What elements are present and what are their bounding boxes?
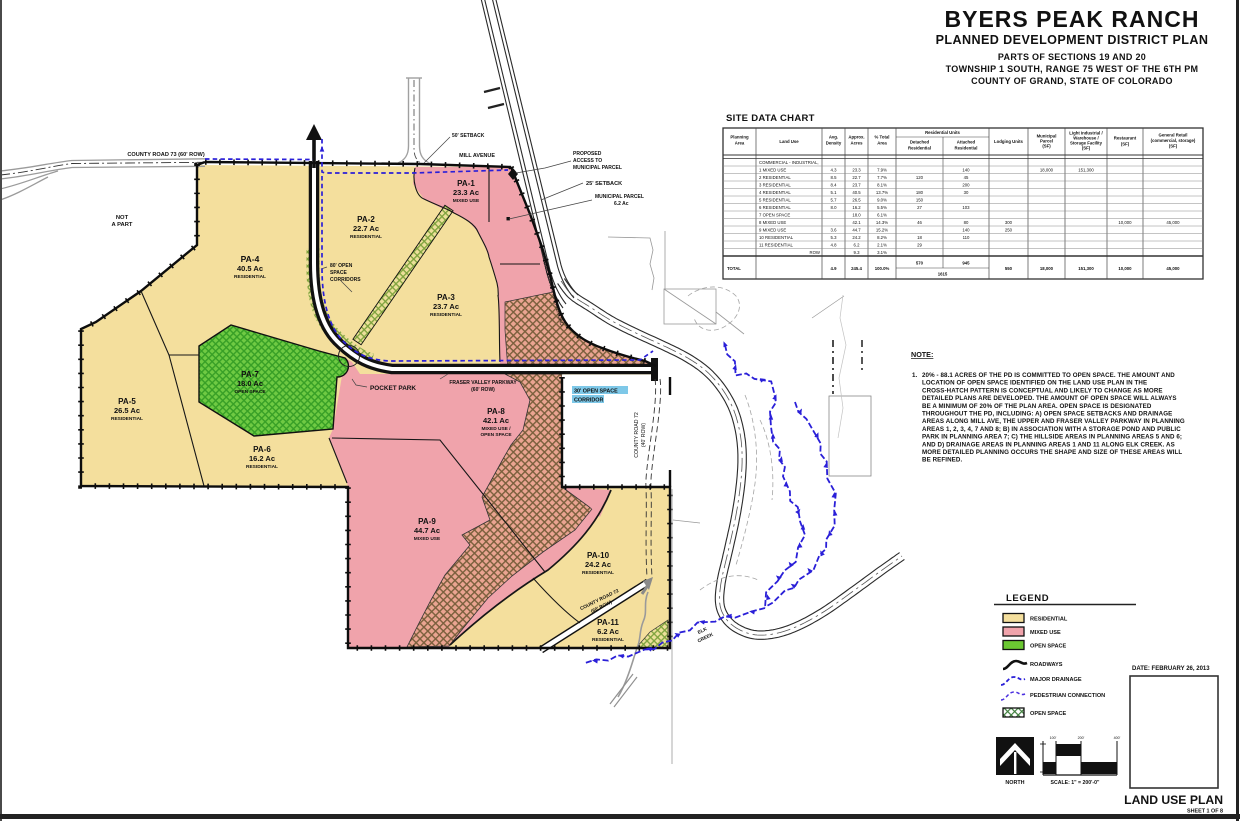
svg-text:ACCESS TO: ACCESS TO [573, 158, 602, 164]
svg-text:BE A MINIMUM OF 20% OF THE PLA: BE A MINIMUM OF 20% OF THE PLAN AREA. OP… [922, 403, 1152, 410]
svg-text:RESIDENTIAL: RESIDENTIAL [246, 464, 278, 470]
svg-text:Approx.: Approx. [848, 135, 864, 140]
svg-text:MIXED USE: MIXED USE [414, 536, 441, 542]
svg-text:MIXED USE: MIXED USE [453, 198, 480, 204]
svg-text:18: 18 [917, 235, 922, 240]
svg-text:DETAILED PLANS ARE DEVELOPED.: DETAILED PLANS ARE DEVELOPED. THE AMOUNT… [922, 395, 1177, 402]
svg-text:40.5 Ac: 40.5 Ac [237, 264, 263, 273]
svg-text:MIXED USE: MIXED USE [1030, 630, 1061, 636]
svg-text:PARK IN PLANNING AREA 7; C) TH: PARK IN PLANNING AREA 7; C) THE HILLSIDE… [922, 434, 1182, 441]
svg-text:AREAS 1, 2, 3, 4, 7 AND 8; B): AREAS 1, 2, 3, 4, 7 AND 8; B) IN ASSOCIA… [922, 426, 1181, 433]
svg-text:200': 200' [1078, 736, 1085, 740]
svg-text:AREAS ALONG MILL AVE, THE UPPE: AREAS ALONG MILL AVE, THE UPPER AND FRAS… [922, 418, 1185, 425]
svg-text:THROUGHOUT THE PD, INCLUDING:: THROUGHOUT THE PD, INCLUDING: A) OPEN SP… [922, 411, 1172, 418]
svg-text:9 MIXED USE: 9 MIXED USE [759, 228, 786, 233]
svg-text:ROW: ROW [809, 250, 820, 255]
svg-text:7 OPEN SPACE: 7 OPEN SPACE [759, 213, 790, 218]
svg-text:Land Use: Land Use [779, 139, 799, 144]
svg-text:(40' ROW): (40' ROW) [641, 423, 647, 448]
svg-text:110: 110 [963, 235, 970, 240]
svg-text:26.5: 26.5 [852, 198, 861, 203]
svg-text:8.1%: 8.1% [877, 183, 887, 188]
svg-text:6.2 Ac: 6.2 Ac [614, 201, 629, 207]
svg-text:6.2 Ac: 6.2 Ac [597, 627, 619, 636]
svg-text:22.7: 22.7 [852, 175, 861, 180]
svg-text:150: 150 [916, 198, 924, 203]
svg-text:15.2%: 15.2% [876, 228, 888, 233]
svg-text:Attached: Attached [957, 140, 976, 145]
svg-text:18,000: 18,000 [1040, 266, 1054, 271]
svg-text:FRASER VALLEY PARKWAY: FRASER VALLEY PARKWAY [449, 380, 517, 386]
svg-text:9.0%: 9.0% [877, 198, 887, 203]
svg-text:Acres: Acres [851, 141, 864, 146]
svg-text:40.5: 40.5 [852, 190, 861, 195]
svg-text:13.7%: 13.7% [876, 190, 888, 195]
svg-text:23.3 Ac: 23.3 Ac [453, 188, 479, 197]
svg-text:PROPOSED: PROPOSED [573, 151, 602, 157]
svg-text:5 RESIDENTIAL: 5 RESIDENTIAL [759, 198, 791, 203]
svg-text:44.7 Ac: 44.7 Ac [414, 526, 440, 535]
svg-text:6 RESIDENTIAL: 6 RESIDENTIAL [759, 205, 791, 210]
svg-text:16.2: 16.2 [852, 205, 861, 210]
svg-text:18,000: 18,000 [1040, 168, 1054, 173]
svg-text:400': 400' [1114, 736, 1121, 740]
svg-text:20% - 88.1 ACRES OF THE PD IS: 20% - 88.1 ACRES OF THE PD IS COMMITTED … [922, 372, 1175, 379]
svg-text:PLANNED DEVELOPMENT DISTRICT P: PLANNED DEVELOPMENT DISTRICT PLAN [936, 33, 1209, 47]
svg-text:9.3: 9.3 [854, 250, 861, 255]
svg-text:MIXED USE /: MIXED USE / [481, 426, 511, 432]
svg-text:(60' ROW): (60' ROW) [471, 387, 495, 393]
svg-text:(SF): (SF) [1169, 144, 1178, 149]
svg-text:COUNTY ROAD 72: COUNTY ROAD 72 [634, 412, 640, 458]
svg-text:2.1%: 2.1% [877, 243, 887, 248]
svg-text:AND D) DRAINAGE AREAS IN PLANN: AND D) DRAINAGE AREAS IN PLANNING AREAS … [922, 441, 1175, 448]
svg-text:SCALE: 1" = 200'-0": SCALE: 1" = 200'-0" [1051, 780, 1101, 786]
svg-text:OPEN SPACE: OPEN SPACE [1030, 711, 1067, 717]
svg-text:SITE DATA CHART: SITE DATA CHART [726, 113, 815, 124]
svg-text:23.3: 23.3 [852, 168, 861, 173]
svg-text:TOTAL: TOTAL [727, 266, 741, 271]
svg-text:LEGEND: LEGEND [1006, 593, 1049, 604]
svg-text:8.4: 8.4 [831, 183, 838, 188]
svg-text:44.7: 44.7 [852, 228, 861, 233]
svg-text:103: 103 [962, 205, 970, 210]
svg-text:RESIDENTIAL: RESIDENTIAL [1030, 617, 1068, 623]
svg-text:RESIDENTIAL: RESIDENTIAL [234, 274, 266, 280]
svg-text:CORRIDORS: CORRIDORS [330, 277, 361, 283]
svg-text:(SF): (SF) [1121, 142, 1130, 147]
svg-text:PA-8: PA-8 [487, 407, 505, 416]
svg-text:300: 300 [1005, 220, 1013, 225]
svg-text:MORE DETAILED PLANNING OCCURS: MORE DETAILED PLANNING OCCURS THE SHAPE … [922, 449, 1182, 456]
svg-text:OPEN SPACE: OPEN SPACE [234, 389, 266, 395]
svg-text:POCKET PARK: POCKET PARK [370, 385, 416, 392]
svg-text:245.4: 245.4 [851, 266, 862, 271]
svg-text:MUNICIPAL PARCEL: MUNICIPAL PARCEL [595, 194, 644, 200]
svg-text:PA-4: PA-4 [241, 254, 260, 264]
svg-text:22.7 Ac: 22.7 Ac [353, 224, 379, 233]
svg-text:General Retail: General Retail [1159, 133, 1188, 138]
svg-text:151,300: 151,300 [1078, 266, 1094, 271]
svg-text:% Total: % Total [875, 135, 890, 140]
svg-text:7.7%: 7.7% [877, 175, 887, 180]
svg-text:10,000: 10,000 [1118, 266, 1132, 271]
svg-text:Detached: Detached [910, 140, 930, 145]
svg-text:8.2%: 8.2% [877, 235, 887, 240]
svg-text:RESIDENTIAL: RESIDENTIAL [582, 570, 614, 576]
svg-text:Lodging Units: Lodging Units [994, 139, 1023, 144]
svg-text:PARTS OF SECTIONS 19 AND 20: PARTS OF SECTIONS 19 AND 20 [998, 52, 1146, 62]
svg-text:Residential: Residential [955, 146, 978, 151]
svg-text:RESIDENTIAL: RESIDENTIAL [592, 637, 624, 643]
svg-text:100': 100' [1050, 736, 1057, 740]
svg-text:100.0%: 100.0% [875, 266, 890, 271]
svg-text:45,000: 45,000 [1166, 266, 1180, 271]
svg-text:PA-6: PA-6 [253, 445, 271, 454]
svg-text:30' OPEN SPACE: 30' OPEN SPACE [574, 389, 618, 395]
svg-text:24.2: 24.2 [852, 235, 861, 240]
svg-text:Restaurant: Restaurant [1114, 136, 1137, 141]
svg-text:18.0: 18.0 [852, 213, 861, 218]
svg-text:A PART: A PART [112, 222, 133, 228]
svg-text:MUNICIPAL PARCEL: MUNICIPAL PARCEL [573, 165, 622, 171]
svg-text:PA-7: PA-7 [241, 370, 259, 379]
svg-text:1615: 1615 [938, 272, 948, 277]
svg-text:OPEN SPACE: OPEN SPACE [480, 432, 512, 438]
svg-text:7.9%: 7.9% [877, 168, 887, 173]
svg-text:Density: Density [826, 141, 842, 146]
svg-text:30: 30 [964, 190, 969, 195]
svg-text:DATE: FEBRUARY 26, 2013: DATE: FEBRUARY 26, 2013 [1132, 666, 1210, 672]
svg-text:NOTE:: NOTE: [911, 350, 933, 359]
svg-text:45,000: 45,000 [1166, 220, 1180, 225]
svg-text:8.0: 8.0 [831, 205, 838, 210]
svg-text:27: 27 [917, 205, 922, 210]
svg-text:140: 140 [962, 168, 970, 173]
svg-text:PEDESTRIAN CONNECTION: PEDESTRIAN CONNECTION [1030, 693, 1105, 699]
svg-text:Planning: Planning [730, 135, 749, 140]
svg-text:24.2 Ac: 24.2 Ac [585, 560, 611, 569]
svg-text:MAJOR DRAINAGE: MAJOR DRAINAGE [1030, 677, 1082, 683]
svg-text:26.5 Ac: 26.5 Ac [114, 406, 140, 415]
svg-text:(SF): (SF) [1082, 146, 1091, 151]
svg-text:Avg.: Avg. [829, 135, 838, 140]
svg-text:RESIDENTIAL: RESIDENTIAL [430, 312, 462, 318]
svg-text:11 RESIDENTIAL: 11 RESIDENTIAL [759, 243, 793, 248]
svg-text:NORTH: NORTH [1005, 780, 1024, 786]
svg-text:6.2: 6.2 [854, 243, 861, 248]
svg-text:CROSS-HATCH PATTERN IS CONCEPT: CROSS-HATCH PATTERN IS CONCEPTUAL AND LI… [922, 387, 1163, 394]
svg-text:PA-3: PA-3 [437, 293, 455, 302]
svg-text:18.0 Ac: 18.0 Ac [237, 379, 263, 388]
svg-text:151,300: 151,300 [1078, 168, 1094, 173]
svg-text:4.3: 4.3 [831, 168, 838, 173]
svg-text:COUNTY OF GRAND, STATE OF COLO: COUNTY OF GRAND, STATE OF COLORADO [971, 76, 1173, 86]
svg-text:LOCATION OF OPEN SPACE IDENTIF: LOCATION OF OPEN SPACE IDENTIFIED ON THE… [922, 380, 1147, 387]
svg-text:3.1%: 3.1% [877, 250, 887, 255]
svg-text:5.1: 5.1 [831, 190, 838, 195]
svg-text:SHEET 1 OF 8: SHEET 1 OF 8 [1187, 809, 1223, 815]
svg-text:SPACE: SPACE [330, 270, 348, 276]
svg-text:BE REFINED.: BE REFINED. [922, 457, 962, 464]
svg-text:120: 120 [916, 175, 924, 180]
svg-text:4.8: 4.8 [831, 243, 838, 248]
svg-text:TOWNSHIP 1 SOUTH, RANGE 75 WES: TOWNSHIP 1 SOUTH, RANGE 75 WEST OF THE 6… [946, 64, 1199, 74]
svg-text:4.9: 4.9 [831, 266, 838, 271]
svg-text:5.7: 5.7 [831, 198, 838, 203]
svg-text:8.5: 8.5 [831, 175, 838, 180]
svg-text:Area: Area [735, 141, 745, 146]
svg-text:3 RESIDENTIAL: 3 RESIDENTIAL [759, 183, 791, 188]
svg-text:8 MIXED USE: 8 MIXED USE [759, 220, 786, 225]
svg-text:4 RESIDENTIAL: 4 RESIDENTIAL [759, 190, 791, 195]
svg-text:570: 570 [916, 261, 924, 266]
svg-text:14.3%: 14.3% [876, 220, 888, 225]
svg-text:50' SETBACK: 50' SETBACK [452, 133, 485, 139]
svg-text:2 RESIDENTIAL: 2 RESIDENTIAL [759, 175, 791, 180]
svg-text:LAND USE PLAN: LAND USE PLAN [1124, 793, 1223, 807]
svg-text:25' SETBACK: 25' SETBACK [586, 181, 622, 187]
svg-text:80' OPEN: 80' OPEN [330, 263, 353, 269]
svg-text:Residential Units: Residential Units [925, 130, 960, 135]
svg-text:PA-1: PA-1 [457, 179, 475, 188]
svg-text:PA-10: PA-10 [587, 551, 610, 560]
svg-text:NOT: NOT [116, 215, 129, 221]
svg-text:550: 550 [1005, 266, 1013, 271]
svg-text:PA-2: PA-2 [357, 215, 375, 224]
svg-text:ROADWAYS: ROADWAYS [1030, 662, 1063, 668]
svg-text:23.7 Ac: 23.7 Ac [433, 302, 459, 311]
svg-text:10 RESIDENTIAL: 10 RESIDENTIAL [759, 235, 794, 240]
svg-text:80: 80 [964, 220, 969, 225]
svg-text:(commercial, storage): (commercial, storage) [1151, 138, 1196, 143]
svg-text:45: 45 [964, 175, 969, 180]
svg-text:PA-9: PA-9 [418, 517, 436, 526]
svg-text:140: 140 [962, 228, 970, 233]
svg-text:BYERS PEAK RANCH: BYERS PEAK RANCH [945, 6, 1200, 32]
svg-text:23.7: 23.7 [852, 183, 861, 188]
svg-text:200: 200 [962, 183, 970, 188]
svg-text:PA-11: PA-11 [597, 618, 619, 627]
svg-text:1.: 1. [912, 372, 917, 379]
svg-text:945: 945 [962, 261, 970, 266]
svg-text:29: 29 [917, 243, 922, 248]
svg-text:250: 250 [1005, 228, 1013, 233]
svg-text:RESIDENTIAL: RESIDENTIAL [111, 416, 143, 422]
svg-text:Residential: Residential [908, 146, 931, 151]
svg-text:PA-5: PA-5 [118, 397, 136, 406]
svg-text:COMMERCIAL - INDUSTRIAL,: COMMERCIAL - INDUSTRIAL, [759, 160, 819, 165]
svg-text:CORRIDOR: CORRIDOR [574, 398, 603, 404]
svg-text:5.5%: 5.5% [877, 205, 887, 210]
svg-text:6.1%: 6.1% [877, 213, 887, 218]
svg-text:OPEN SPACE: OPEN SPACE [1030, 644, 1067, 650]
svg-text:180: 180 [916, 190, 924, 195]
svg-text:Area: Area [877, 141, 887, 146]
svg-text:MILL AVENUE: MILL AVENUE [459, 153, 495, 159]
svg-text:42.1 Ac: 42.1 Ac [483, 416, 509, 425]
svg-text:16.2 Ac: 16.2 Ac [249, 454, 275, 463]
svg-text:5.3: 5.3 [831, 235, 838, 240]
svg-text:1 MIXED USE: 1 MIXED USE [759, 168, 786, 173]
svg-text:3.6: 3.6 [831, 228, 838, 233]
svg-text:RESIDENTIAL: RESIDENTIAL [350, 234, 382, 240]
svg-text:46: 46 [917, 220, 922, 225]
svg-text:(SF): (SF) [1042, 144, 1051, 149]
svg-text:COUNTY ROAD 73 (60' ROW): COUNTY ROAD 73 (60' ROW) [127, 152, 205, 158]
svg-text:42.1: 42.1 [852, 220, 861, 225]
svg-text:10,000: 10,000 [1118, 220, 1132, 225]
